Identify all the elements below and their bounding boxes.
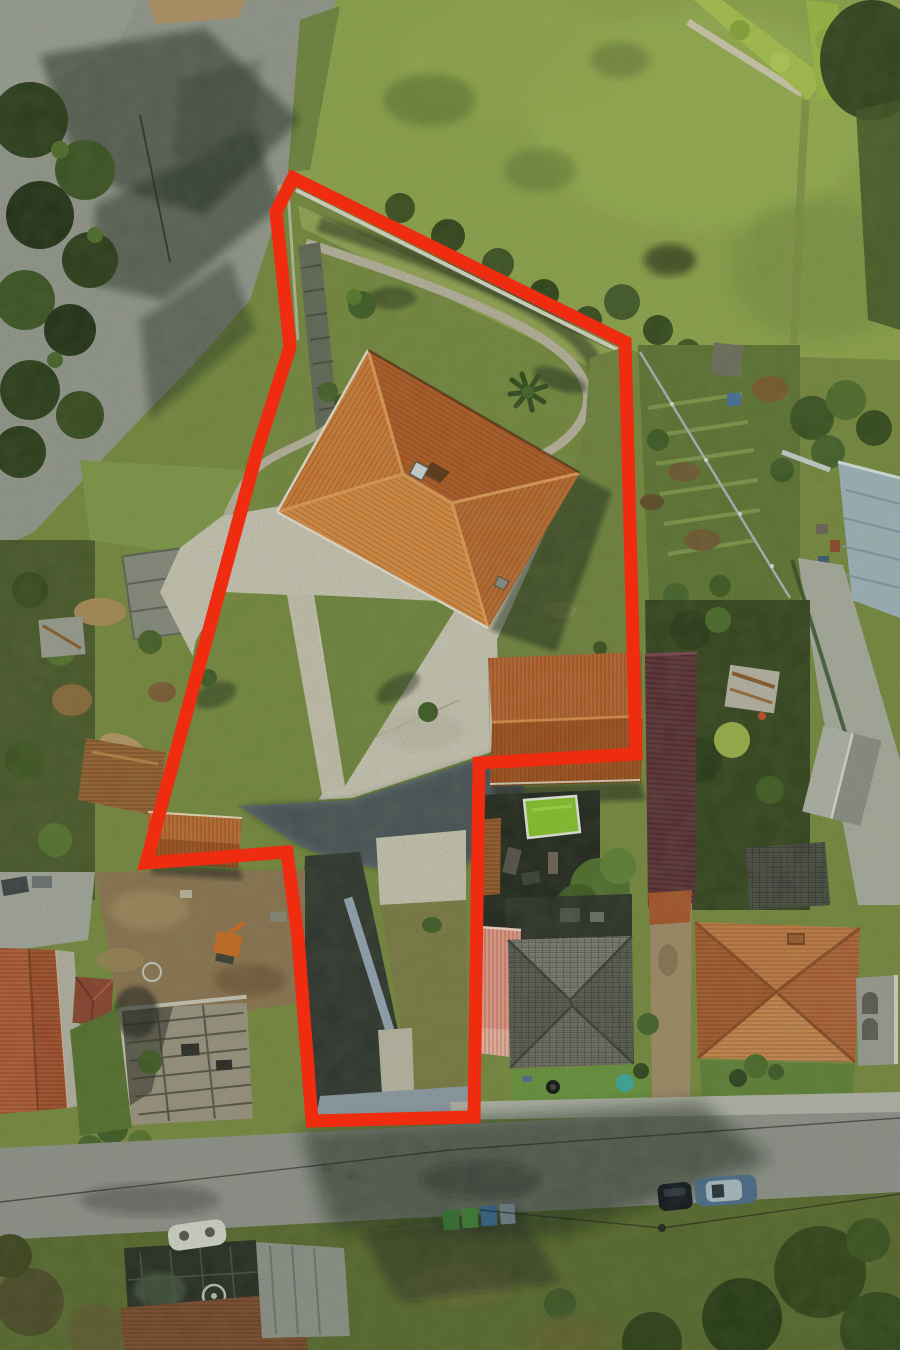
- photo-grain-overlay: [0, 0, 900, 1350]
- aerial-photo-canvas: [0, 0, 900, 1350]
- aerial-photo: [0, 0, 900, 1350]
